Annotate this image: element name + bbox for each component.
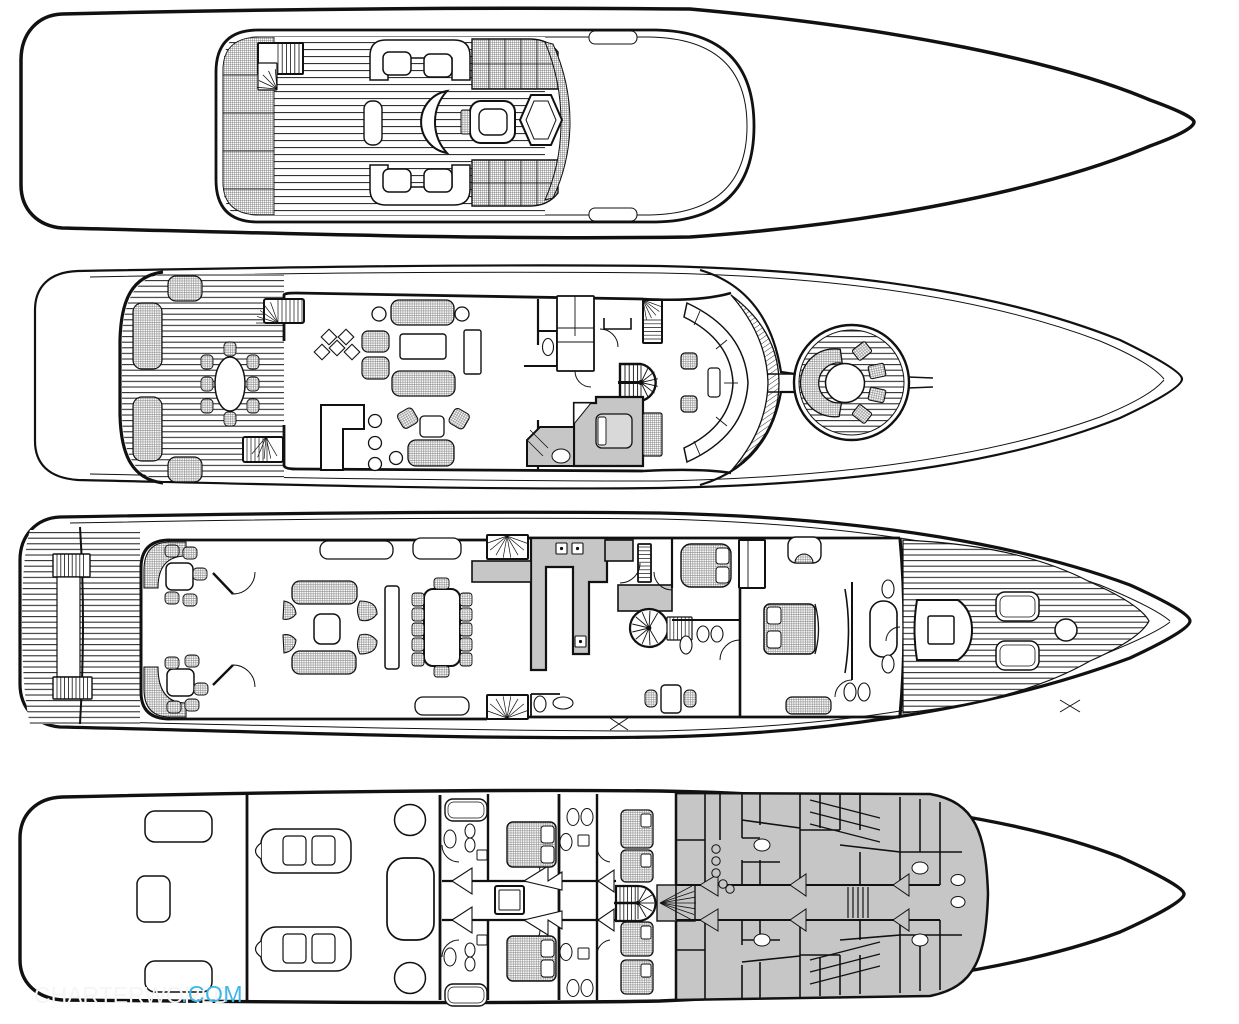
svg-text:.COM: .COM [181,981,243,1007]
